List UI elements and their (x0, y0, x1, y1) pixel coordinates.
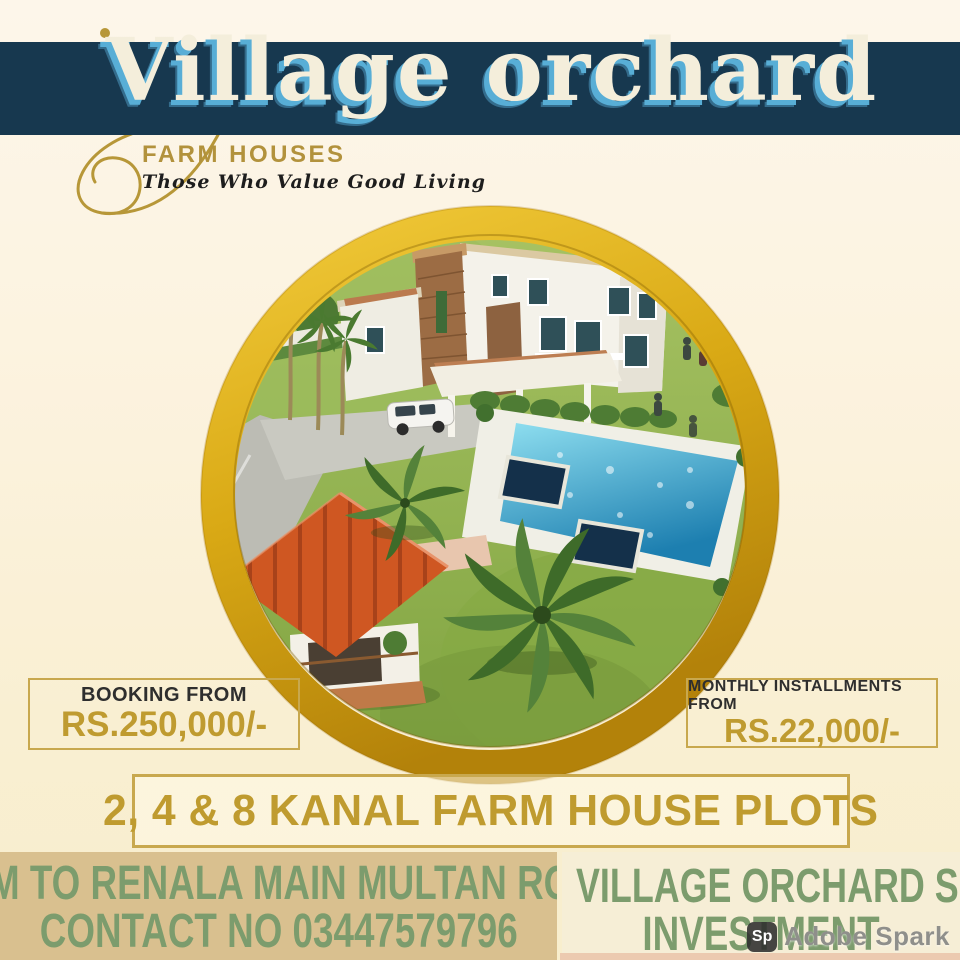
installment-amount: RS.22,000/- (724, 714, 900, 749)
installment-label: MONTHLY INSTALLMENTS FROM (688, 678, 936, 714)
booking-price-box: BOOKING FROM RS.250,000/- (28, 678, 300, 750)
footer-contact-line: CONTACT NO 03447579796 (40, 905, 518, 955)
real-estate-poster: Village orchard FARM HOUSES Those Who Va… (0, 0, 960, 960)
logo-tagline: Those Who Value Good Living (142, 171, 486, 193)
logo-block: FARM HOUSES Those Who Value Good Living (142, 141, 486, 193)
footer-location-box: 6 KM TO RENALA MAIN MULTAN ROAD CONTACT … (0, 852, 557, 960)
poster-title: Village orchard (0, 24, 960, 119)
plots-banner-text: 2, 4 & 8 KANAL FARM HOUSE PLOTS (103, 786, 878, 836)
adobe-spark-watermark: Sp Adobe Spark (747, 921, 950, 952)
logo-name: FARM HOUSES (142, 141, 486, 169)
booking-label: BOOKING FROM (81, 684, 247, 707)
installment-price-box: MONTHLY INSTALLMENTS FROM RS.22,000/- (686, 678, 938, 748)
bottom-edge-strip (560, 953, 960, 960)
footer-project-line: VILLAGE ORCHARD SUPREME (576, 860, 876, 910)
watermark-label: Adobe Spark (784, 921, 950, 952)
spark-logo-icon: Sp (747, 922, 777, 952)
footer-location-line: 6 KM TO RENALA MAIN MULTAN ROAD (0, 857, 557, 907)
booking-amount: RS.250,000/- (61, 707, 267, 744)
plots-banner: 2, 4 & 8 KANAL FARM HOUSE PLOTS (132, 774, 850, 848)
